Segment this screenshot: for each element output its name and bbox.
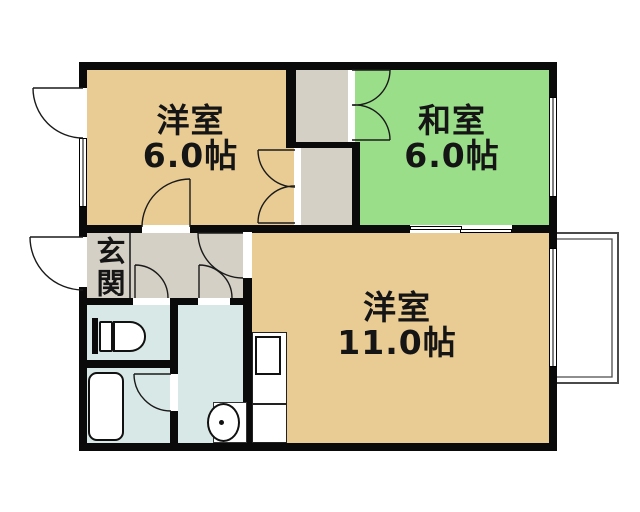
opening-closet-upper: [348, 70, 355, 140]
closet-upper: [296, 70, 348, 142]
door-swing-arc: [30, 237, 83, 290]
window-west11-right: [549, 248, 557, 367]
wall-exterior-bottom: [79, 443, 557, 451]
bathtub-icon: [88, 372, 124, 441]
opening-hall-west11-door: [243, 232, 252, 278]
door-swing-arc: [33, 88, 83, 138]
wall-exterior-top: [79, 62, 557, 70]
toilet-icon: [99, 321, 113, 352]
balcony-inner-rail: [557, 239, 612, 377]
opening-west6-exterior-door: [79, 88, 87, 138]
floor-plan-canvas: 洋室 6.0帖 和室 6.0帖 洋室 11.0帖 玄関: [0, 0, 640, 512]
window-center-line: [553, 249, 554, 366]
wall-toilet-washroom: [170, 305, 178, 368]
wall-toilet-bath: [87, 360, 178, 368]
balcony: [557, 233, 618, 383]
opening-west6-door: [142, 225, 190, 233]
window-japanese-right: [549, 97, 557, 197]
opening-toilet-door: [133, 298, 170, 305]
kitchen-divider: [252, 403, 287, 405]
closet-lower: [301, 148, 352, 225]
window-west6-left: [79, 138, 87, 207]
sliding-door-pane-left: [410, 226, 462, 230]
washing-machine-dot: [219, 420, 224, 425]
room-name: 洋室: [252, 290, 542, 325]
opening-closet-lower: [294, 148, 301, 225]
toilet-bowl-icon: [113, 321, 146, 352]
room-size: 11.0帖: [252, 325, 542, 360]
label-room-japanese-6: 和室 6.0帖: [355, 103, 549, 173]
room-size: 6.0帖: [355, 138, 549, 173]
pipe-shaft: [92, 318, 98, 354]
label-room-western-11: 洋室 11.0帖: [252, 290, 542, 360]
label-genkan: 玄関: [92, 236, 126, 300]
room-name: 洋室: [87, 103, 294, 138]
opening-bath-door: [170, 374, 178, 411]
opening-washroom-door: [198, 298, 230, 305]
room-size: 6.0帖: [87, 138, 294, 173]
window-center-line: [553, 98, 554, 196]
genkan-step-line: [129, 233, 131, 298]
window-center-line: [83, 139, 84, 206]
room-name: 和室: [355, 103, 549, 138]
opening-front-door: [79, 237, 87, 287]
label-room-western-6: 洋室 6.0帖: [87, 103, 294, 173]
sliding-door-pane-right: [460, 229, 512, 233]
